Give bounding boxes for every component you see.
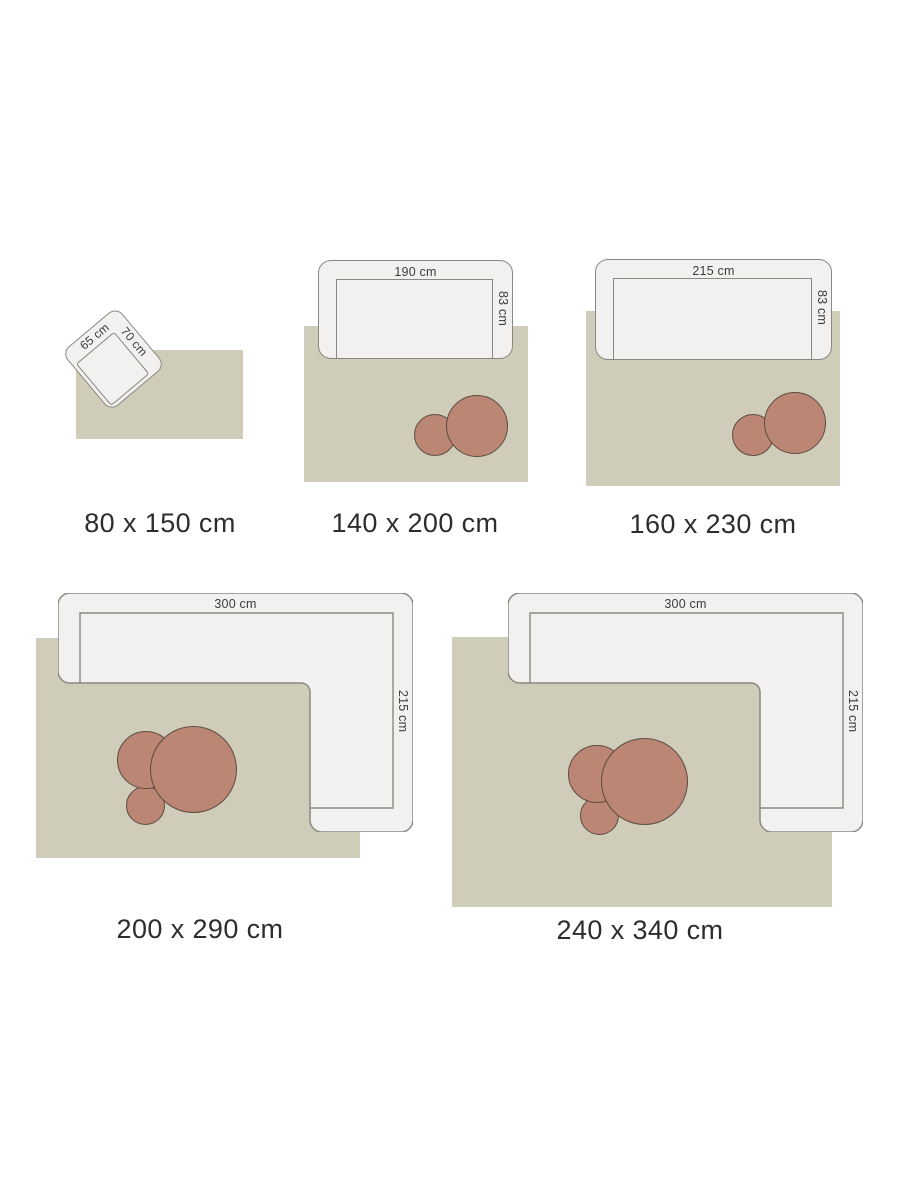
- corner-sofa-width-dimension: 300 cm: [58, 598, 413, 611]
- sofa-depth-dimension: 83 cm: [497, 291, 510, 326]
- sofa-seat: [336, 279, 493, 358]
- side-table-large: [764, 392, 826, 454]
- rug-size-label: 80 x 150 cm: [40, 509, 280, 539]
- rug-size-label: 140 x 200 cm: [295, 509, 535, 539]
- sofa-top-view: 190 cm 83 cm: [318, 260, 513, 359]
- sofa-top-view: 215 cm 83 cm: [595, 259, 832, 360]
- rug-size-guide: 65 cm 70 cm 80 x 150 cm 190 cm 83 cm 140…: [0, 0, 900, 1200]
- corner-sofa-top-view: 300 cm 215 cm: [508, 593, 863, 832]
- sofa-width-dimension: 190 cm: [319, 266, 512, 279]
- corner-sofa-body: [58, 593, 413, 832]
- corner-sofa-body: [508, 593, 863, 832]
- corner-sofa-outline: [58, 593, 413, 832]
- corner-sofa-top-view: 300 cm 215 cm: [58, 593, 413, 832]
- corner-sofa-depth-dimension: 215 cm: [397, 690, 410, 732]
- side-table-large: [150, 726, 237, 813]
- corner-sofa-outline: [508, 593, 863, 832]
- corner-sofa-depth-dimension: 215 cm: [847, 690, 860, 732]
- corner-sofa-width-dimension: 300 cm: [508, 598, 863, 611]
- rug-size-label: 200 x 290 cm: [80, 915, 320, 945]
- sofa-depth-dimension: 83 cm: [816, 290, 829, 325]
- side-table-large: [446, 395, 508, 457]
- side-table-large: [601, 738, 688, 825]
- rug-size-label: 160 x 230 cm: [593, 510, 833, 540]
- rug-size-label: 240 x 340 cm: [520, 916, 760, 946]
- sofa-width-dimension: 215 cm: [596, 265, 831, 278]
- sofa-seat: [613, 278, 812, 359]
